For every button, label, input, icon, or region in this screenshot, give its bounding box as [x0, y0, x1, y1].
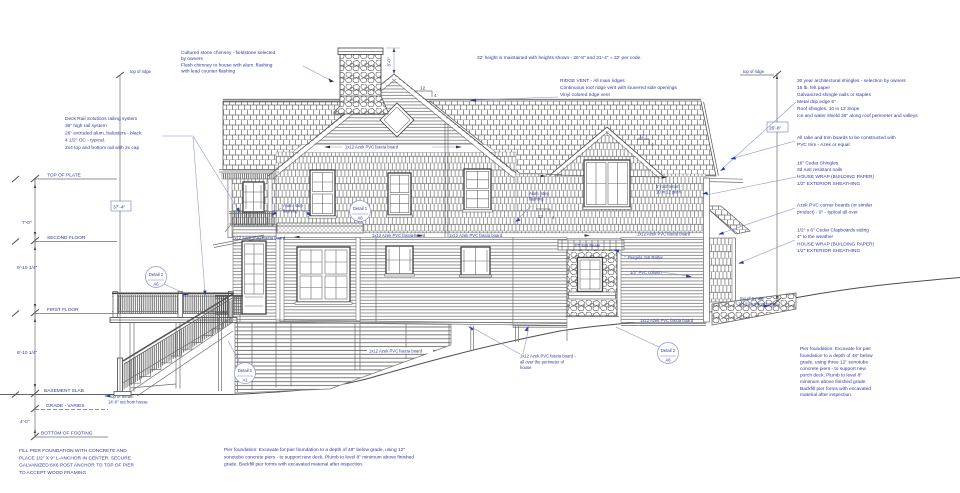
svg-text:Galvanized shingle nails or st: Galvanized shingle nails or staples — [797, 92, 871, 98]
svg-text:sonotube concrete piers - to s: sonotube concrete piers - to support new… — [224, 454, 414, 460]
svg-text:1/2" EXTERIOR SHEATHING: 1/2" EXTERIOR SHEATHING — [797, 181, 860, 187]
svg-text:Alum. step: Alum. step — [283, 203, 303, 208]
svg-text:SECOND FLOOR: SECOND FLOOR — [47, 235, 86, 241]
svg-text:4 1/2" OC - typical.: 4 1/2" OC - typical. — [65, 138, 105, 144]
svg-text:1x12 Azek PVC fascia board: 1x12 Azek PVC fascia board — [640, 318, 694, 323]
svg-text:12: 12 — [420, 86, 426, 92]
svg-text:foundation to a depth of 48" b: foundation to a depth of 48" below — [800, 353, 873, 359]
svg-text:14'-0" out from house: 14'-0" out from house — [108, 400, 148, 405]
svg-text:Pier foundation: Excavate for: Pier foundation: Excavate for pier — [800, 346, 871, 352]
svg-text:Detail 1: Detail 1 — [238, 368, 253, 373]
svg-text:GRADE - VARIES: GRADE - VARIES — [46, 403, 85, 409]
svg-text:minimum above finished grade.: minimum above finished grade. — [800, 379, 867, 385]
svg-text:1x12 Azek PVC fascia board: 1x12 Azek PVC fascia board — [369, 349, 423, 354]
svg-text:A6: A6 — [665, 358, 671, 363]
svg-text:2x4 top and bottom rail with 2: 2x4 top and bottom rail with 2x cap — [65, 145, 139, 151]
svg-text:15 lb. felt paper: 15 lb. felt paper — [797, 85, 830, 91]
svg-text:material after inspection.: material after inspection. — [800, 392, 852, 398]
svg-text:Metal drip edge 5": Metal drip edge 5" — [797, 99, 836, 105]
svg-text:4" to the weather: 4" to the weather — [797, 234, 834, 240]
svg-text:A6: A6 — [357, 216, 363, 221]
svg-text:GALVANIZED 6X6 POST ANCHOR TO: GALVANIZED 6X6 POST ANCHOR TO TOP OF PIE… — [19, 463, 135, 469]
svg-text:3'-0": 3'-0" — [387, 57, 393, 67]
svg-text:All rake and trim boards to be: All rake and trim boards to be construct… — [797, 135, 896, 141]
svg-text:PVC trim - Azek or equal: PVC trim - Azek or equal — [797, 142, 850, 148]
svg-text:1x12 Azek PVC fascia board: 1x12 Azek PVC fascia board — [637, 232, 691, 237]
svg-text:grade, using three 12" sonotub: grade, using three 12" sonotube — [800, 359, 868, 365]
svg-text:30 year architectural shingles: 30 year architectural shingles - selecti… — [797, 78, 906, 84]
svg-text:Detail 1: Detail 1 — [353, 206, 368, 211]
svg-text:26" extruded alum. balusters -: 26" extruded alum. balusters - black — [65, 130, 142, 136]
svg-text:all over the perimeter of: all over the perimeter of — [520, 359, 565, 364]
svg-text:concrete piers - to support ne: concrete piers - to support new — [800, 366, 866, 372]
svg-text:flashing: flashing — [529, 197, 544, 202]
svg-text:Flash chimney to house with al: Flash chimney to house with alum. flashi… — [181, 62, 273, 68]
svg-text:16" Cedar Shingles: 16" Cedar Shingles — [797, 160, 839, 166]
svg-text:PT 6x6 Beam: PT 6x6 Beam — [575, 243, 601, 248]
svg-text:A1: A1 — [242, 378, 248, 383]
svg-text:FILL PIER FOUNDATION WITH CONC: FILL PIER FOUNDATION WITH CONCRETE AND — [19, 448, 127, 454]
svg-text:A6: A6 — [153, 282, 159, 287]
svg-text:12: 12 — [538, 214, 543, 219]
svg-text:1x12 Azek PVC fascia board -: 1x12 Azek PVC fascia board - — [520, 354, 576, 359]
svg-text:top of ridge: top of ridge — [130, 69, 152, 74]
svg-text:top of ridge: top of ridge — [743, 69, 765, 74]
svg-text:37'-4": 37'-4" — [113, 205, 126, 211]
svg-text:Alum. step: Alum. step — [529, 191, 549, 196]
svg-text:Pergola 2x6 Rafter: Pergola 2x6 Rafter — [628, 255, 664, 260]
svg-text:with lead counter flashing: with lead counter flashing — [181, 69, 235, 75]
svg-text:4: 4 — [651, 142, 654, 148]
svg-text:3d rust resistant nails: 3d rust resistant nails — [797, 167, 843, 173]
svg-text:Continuous roof ridge vent wit: Continuous roof ridge vent with louvered… — [560, 85, 677, 91]
svg-text:1x12 Azek PVC fascia board: 1x12 Azek PVC fascia board — [449, 233, 503, 238]
svg-text:36" high rail system: 36" high rail system — [65, 123, 107, 129]
svg-text:12'-0" out from house: 12'-0" out from house — [738, 302, 778, 307]
svg-text:BASEMENT SLAB: BASEMENT SLAB — [44, 388, 84, 394]
svg-text:4'-0": 4'-0" — [20, 419, 30, 425]
svg-text:product) - 9" - typical all ov: product) - 9" - typical all over — [797, 209, 858, 215]
svg-text:Ice and water shield 36" along: Ice and water shield 36" along roof peri… — [797, 113, 918, 119]
svg-text:Roof shingles, 10 in 12 Slope: Roof shingles, 10 in 12 Slope — [797, 106, 860, 112]
svg-text:top of terrain: top of terrain — [740, 296, 764, 301]
svg-text:8'-10 1/4": 8'-10 1/4" — [17, 350, 38, 356]
svg-text:BOTTOM OF FOOTING: BOTTOM OF FOOTING — [41, 431, 93, 437]
svg-text:Azek PVC corner boards (or sim: Azek PVC corner boards (or similar — [797, 203, 873, 209]
svg-text:32' height is maintained with: 32' height is maintained with heights sh… — [477, 55, 642, 61]
svg-text:PLACE 1/2" X 9" L-ANCHOR IN CE: PLACE 1/2" X 9" L-ANCHOR IN CENTER. SECU… — [19, 455, 131, 461]
svg-text:TO ACCEPT WOOD FRAMING: TO ACCEPT WOOD FRAMING — [19, 470, 87, 476]
svg-text:7'-0": 7'-0" — [22, 220, 32, 226]
svg-text:3' roof return -: 3' roof return - — [656, 184, 683, 189]
svg-text:Detail 2: Detail 2 — [661, 348, 676, 353]
svg-text:grade. Backfill pier forms wi: grade. Backfill pier forms with excavate… — [224, 462, 363, 468]
svg-text:HOUSE WRAP (BUILDING PAPER): HOUSE WRAP (BUILDING PAPER) — [797, 174, 875, 180]
svg-text:Pier foundation: Excavate for: Pier foundation: Excavate for pier found… — [224, 447, 405, 453]
svg-text:porch deck. Plumb to level 8": porch deck. Plumb to level 8" — [800, 373, 862, 379]
svg-text:1x12 Azek PVC fascia board: 1x12 Azek PVC fascia board — [232, 236, 286, 241]
svg-text:4: 4 — [434, 93, 437, 99]
svg-text:HOUSE WRAP (BUILDING PAPER): HOUSE WRAP (BUILDING PAPER) — [797, 241, 875, 247]
svg-text:by owners: by owners — [181, 56, 203, 62]
svg-text:flashing: flashing — [283, 209, 298, 214]
svg-text:Vinyl colored ridge vent: Vinyl colored ridge vent — [560, 92, 610, 98]
svg-text:1/2" EXTERIOR SHEATHING: 1/2" EXTERIOR SHEATHING — [797, 248, 860, 254]
svg-text:10 in 12 pitch: 10 in 12 pitch — [656, 190, 682, 195]
svg-text:1/2" x 6" Cedar Clapboards sid: 1/2" x 6" Cedar Clapboards siding — [797, 228, 869, 234]
svg-text:12: 12 — [639, 134, 645, 140]
svg-text:9'-10 1/4": 9'-10 1/4" — [17, 265, 38, 271]
svg-text:house: house — [520, 365, 532, 370]
svg-text:1x12 Azek PVC fascia board: 1x12 Azek PVC fascia board — [345, 145, 399, 150]
svg-text:Backfill pier forms with excav: Backfill pier forms with excavated — [800, 386, 871, 392]
svg-text:26'-8": 26'-8" — [769, 126, 782, 132]
svg-text:RIDGE VENT - All main ridges: RIDGE VENT - All main ridges — [560, 78, 625, 84]
svg-text:FIRST FLOOR: FIRST FLOOR — [47, 307, 79, 313]
svg-text:Detail 2: Detail 2 — [149, 272, 164, 277]
svg-text:Deck Rail Solutions railing sy: Deck Rail Solutions railing system — [65, 116, 137, 122]
svg-text:1/2" PVC column: 1/2" PVC column — [630, 270, 662, 275]
svg-text:TOP OF PLATE: TOP OF PLATE — [47, 173, 81, 179]
svg-text:Cultured stone chimney - field: Cultured stone chimney - fieldstone sele… — [181, 50, 276, 56]
